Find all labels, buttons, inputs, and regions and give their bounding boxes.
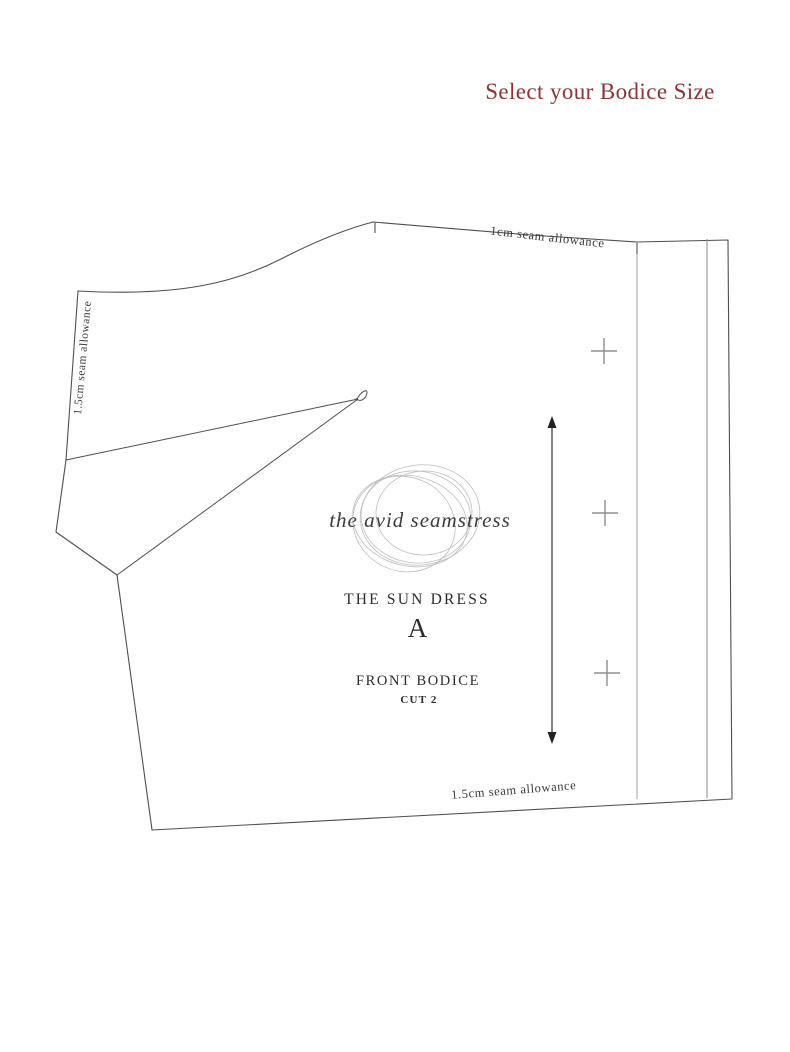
pattern-name: THE SUN DRESS (344, 591, 490, 608)
cross-mark-icon (592, 500, 618, 526)
cross-marks (591, 338, 620, 686)
grainline-double-arrow-icon (548, 416, 557, 744)
pattern-page: Select your Bodice Size (0, 0, 790, 1052)
seam-allowance-bottom-label: 1.5cm seam allowance (451, 778, 577, 802)
brand-logo-text: the avid seamstress (329, 508, 511, 532)
cross-mark-icon (594, 660, 620, 686)
pattern-piece-name: FRONT BODICE (356, 673, 480, 689)
pattern-size: A (408, 613, 429, 643)
seam-allowance-left-label: 1.5cm seam allowance (72, 300, 94, 415)
cross-mark-icon (591, 338, 617, 364)
seam-allowance-top-label: 1cm seam allowance (490, 224, 606, 251)
pattern-diagram: 1cm seam allowance 1.5cm seam allowance … (0, 0, 790, 1052)
bust-dart (66, 391, 367, 575)
dart-tip-curl (356, 391, 367, 401)
pattern-cut-instruction: CUT 2 (400, 694, 437, 706)
